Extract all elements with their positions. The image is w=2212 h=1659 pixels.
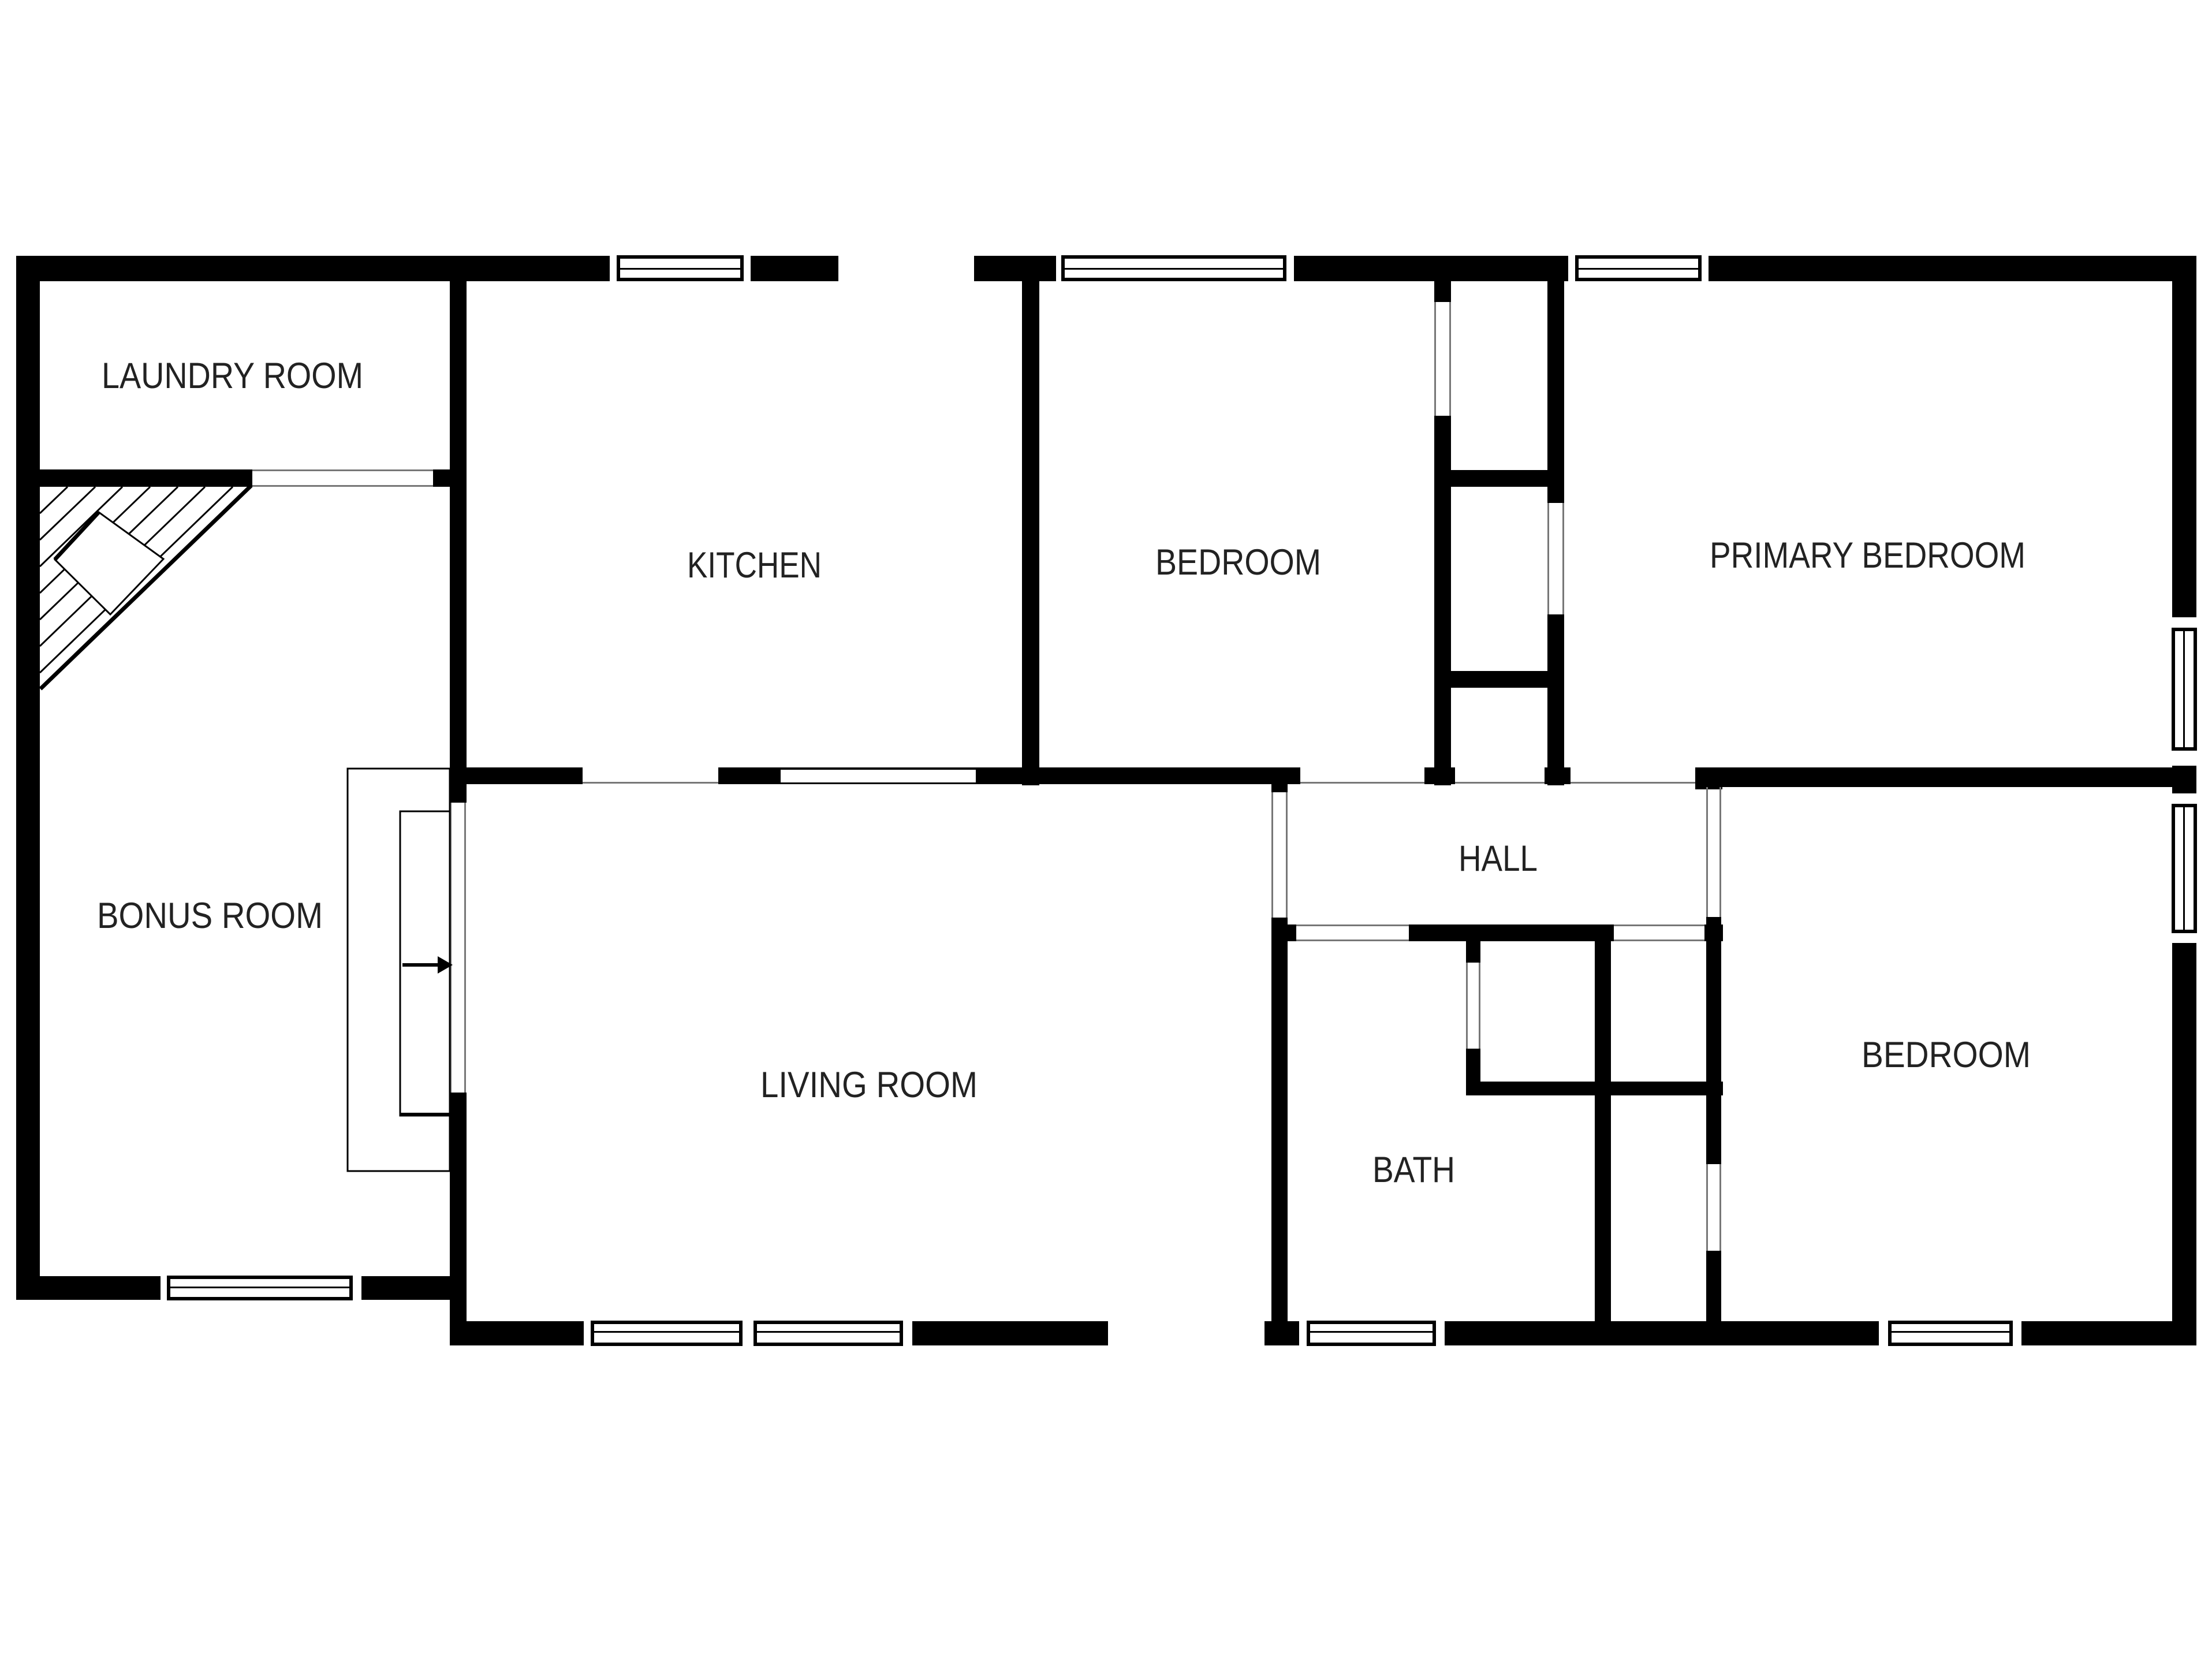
svg-text:BATH: BATH <box>1372 1150 1455 1190</box>
svg-text:BEDROOM: BEDROOM <box>1862 1035 2031 1075</box>
svg-text:BEDROOM: BEDROOM <box>1155 542 1321 583</box>
svg-text:PRIMARY BEDROOM: PRIMARY BEDROOM <box>1710 535 2026 576</box>
svg-text:LIVING ROOM: LIVING ROOM <box>760 1065 978 1105</box>
svg-text:KITCHEN: KITCHEN <box>687 545 822 586</box>
svg-text:HALL: HALL <box>1458 838 1538 879</box>
svg-text:LAUNDRY ROOM: LAUNDRY ROOM <box>102 356 363 396</box>
svg-text:BONUS ROOM: BONUS ROOM <box>97 896 323 936</box>
